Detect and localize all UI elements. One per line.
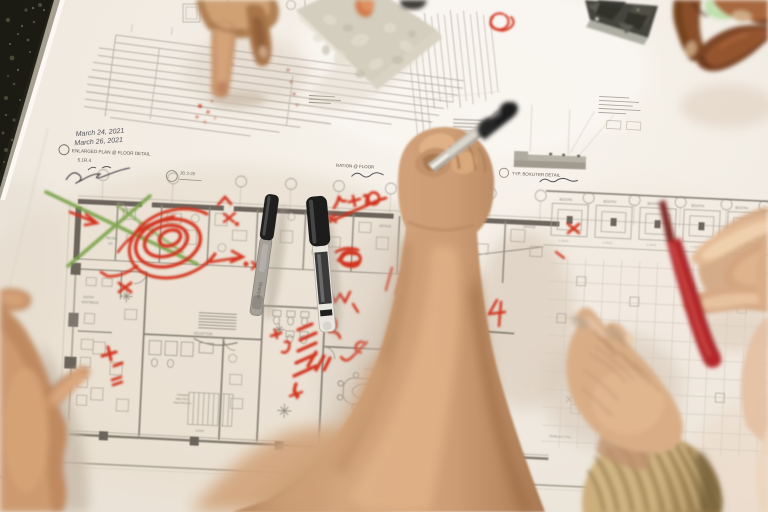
svg-text:BOOTH: BOOTH — [559, 198, 572, 203]
svg-text:JB 3-26: JB 3-26 — [180, 170, 196, 176]
svg-text:1 OA.D: 1 OA.D — [603, 241, 614, 245]
svg-text:5.1R.4: 5.1R.4 — [77, 157, 91, 163]
svg-text:OFFICE: OFFICE — [523, 225, 536, 230]
svg-text:1 OA.D: 1 OA.D — [559, 239, 570, 243]
svg-text:BOOTH: BOOTH — [735, 206, 748, 211]
svg-text:1 OA.D: 1 OA.D — [646, 243, 657, 247]
svg-text:OFFICE: OFFICE — [379, 224, 392, 229]
svg-text:VESTIBULE: VESTIBULE — [81, 300, 99, 305]
svg-text:RETAIL: RETAIL — [106, 236, 118, 241]
svg-text:BOOTH: BOOTH — [647, 202, 660, 207]
svg-text:STAIR: STAIR — [195, 429, 205, 433]
svg-text:BOOTH: BOOTH — [691, 204, 704, 209]
svg-text:ENTRY: ENTRY — [83, 295, 95, 300]
svg-text:BOOTH: BOOTH — [603, 200, 616, 205]
svg-text:103: 103 — [108, 241, 113, 245]
